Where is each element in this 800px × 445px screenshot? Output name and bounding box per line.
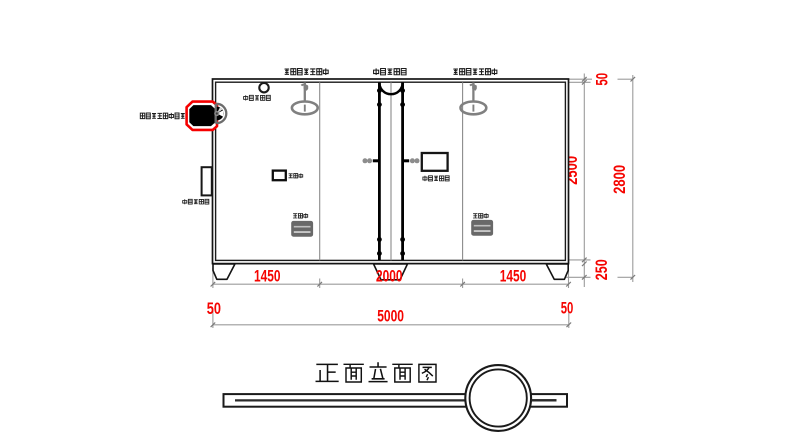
svg-text:2800: 2800 xyxy=(611,165,629,194)
svg-text:50: 50 xyxy=(561,300,574,318)
svg-text:50: 50 xyxy=(207,300,221,318)
svg-text:1450: 1450 xyxy=(254,267,281,285)
svg-text:2000: 2000 xyxy=(376,267,403,285)
svg-text:50: 50 xyxy=(594,73,612,86)
svg-text:5000: 5000 xyxy=(377,308,404,326)
svg-text:1450: 1450 xyxy=(500,267,527,285)
svg-text:250: 250 xyxy=(593,259,611,280)
